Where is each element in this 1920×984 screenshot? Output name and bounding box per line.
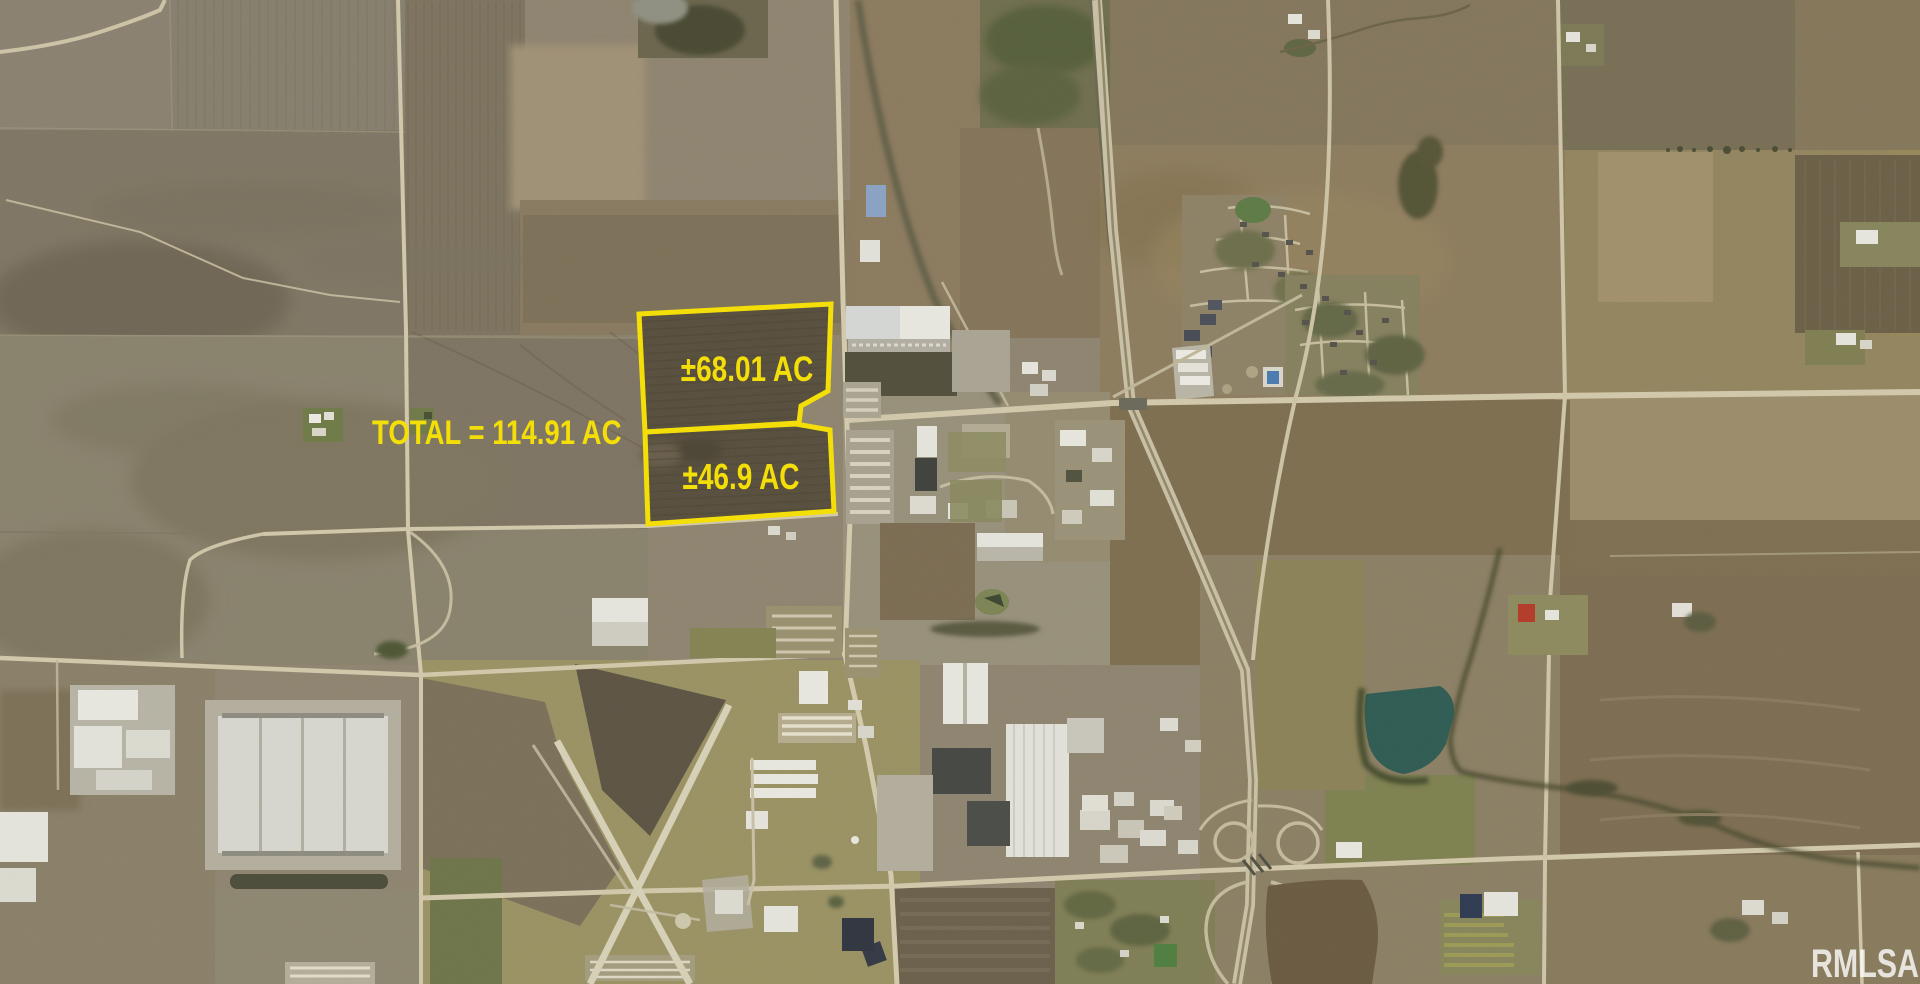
svg-text:RMLSA: RMLSA — [1811, 941, 1919, 984]
